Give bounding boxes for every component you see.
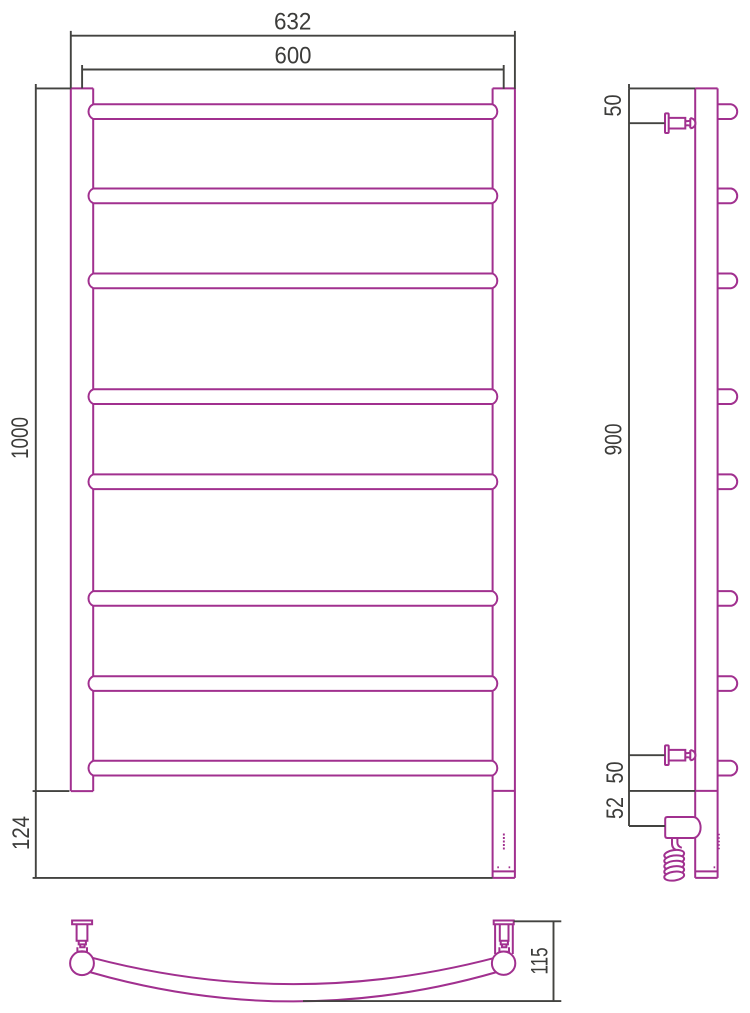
svg-text:52: 52 [602, 797, 629, 819]
svg-text:50: 50 [600, 95, 627, 117]
svg-text:900: 900 [601, 424, 628, 456]
svg-text:1000: 1000 [7, 417, 34, 459]
svg-text:632: 632 [274, 8, 312, 35]
svg-text:124: 124 [8, 816, 35, 850]
svg-text:50: 50 [602, 762, 629, 784]
svg-text:600: 600 [275, 42, 312, 69]
svg-text:115: 115 [527, 948, 554, 975]
